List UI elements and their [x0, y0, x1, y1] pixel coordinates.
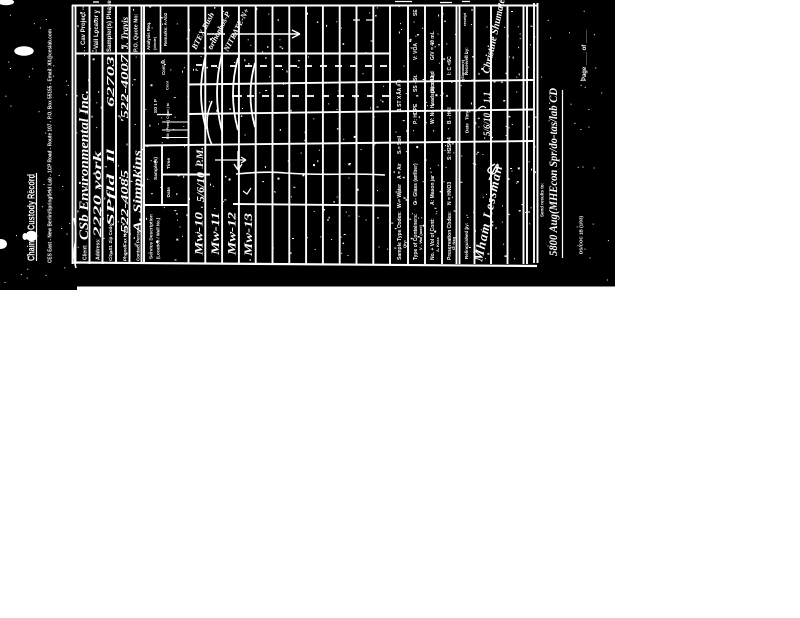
svg-text:Filt | Pres | Cyan | tc: Filt | Pres | Cyan | tc: [166, 103, 170, 139]
svg-text:receipt: receipt: [462, 12, 467, 26]
svg-text:62703: 62703: [105, 55, 117, 107]
svg-text:AA # 4: AA # 4: [397, 79, 403, 95]
svg-text:G - Glass (amber): G - Glass (amber): [413, 163, 419, 205]
svg-text:Service Description: Service Description: [149, 214, 155, 259]
svg-text:W = Water: W = Water: [397, 184, 403, 208]
svg-text:Cool: Cool: [165, 81, 170, 90]
svg-text:SS - St.: SS - St.: [413, 74, 419, 92]
svg-text:Il: Il: [105, 147, 117, 165]
svg-text:Relinquished by:: Relinquished by:: [464, 222, 469, 259]
svg-text:SE: SE: [413, 9, 419, 16]
svg-text:CES East - New Berlin/Springfi: CES East - New Berlin/Springfield Lab - …: [48, 29, 54, 263]
svg-text:J. Travis: J. Travis: [120, 16, 130, 50]
svg-text:Remarks: A-Ab2: Remarks: A-Ab2: [163, 12, 168, 46]
svg-text:City, St. Zip Code:: City, St. Zip Code:: [108, 222, 113, 261]
svg-text:P.M.: P.M.: [195, 147, 205, 167]
svg-text:I: C <6C: I: C <6C: [447, 56, 453, 75]
svg-text:A. Simpkins: A. Simpkins: [130, 150, 144, 234]
svg-text:5800 Aug(MHEcon Spr/do-tas/lab: 5800 Aug(MHEcon Spr/do-tas/lab CD: [548, 87, 560, 256]
svg-text:S: H2SO4: S: H2SO4: [447, 137, 453, 160]
svg-text:Mw-10: Mw-10: [192, 212, 206, 256]
svg-text:--Vail Locator y: --Vail Locator y: [94, 9, 100, 53]
svg-text:Chain of Custody Record: Chain of Custody Record: [27, 174, 38, 261]
svg-text:V: VOA: V: VOA: [413, 43, 419, 60]
svg-text:A: Mason jar: A: Mason jar: [430, 175, 436, 205]
svg-text:P: HDPE: P: HDPE: [413, 103, 419, 124]
svg-text:Mw-12: Mw-12: [225, 212, 239, 256]
svg-text:A = Air: A = Air: [397, 163, 403, 179]
svg-text:Sample(s): Sample(s): [153, 157, 159, 180]
svg-text:Time: Time: [166, 158, 172, 169]
svg-text:5/6/10: 5/6/10: [196, 172, 207, 202]
svg-text:Time: Time: [465, 109, 470, 120]
svg-text:SO 1 P: SO 1 P: [153, 99, 158, 113]
svg-text:5/6/10: 5/6/10: [482, 112, 492, 136]
svg-text:Sample Type Codes:: Sample Type Codes:: [397, 211, 403, 260]
svg-text:S = Soil: S = Soil: [397, 135, 403, 154]
svg-text:. . . Cav Project --: . . . Cav Project --: [81, 6, 87, 55]
svg-text:Date: Date: [465, 123, 470, 133]
svg-text:1.1: 1.1: [482, 92, 492, 103]
svg-text:Preservation Codes:: Preservation Codes:: [447, 211, 453, 260]
svg-text:Send results to:: Send results to:: [540, 182, 545, 217]
svg-text:1 ST X: 1 ST X: [397, 95, 403, 111]
svg-text:N = HNO3: N = HNO3: [447, 182, 453, 205]
svg-text:P.O. Quote No:: P.O. Quote No:: [134, 13, 140, 52]
svg-text:(Signature): (Signature): [461, 59, 465, 80]
svg-text:Analysis Req.: Analysis Req.: [146, 22, 151, 50]
svg-text:A. Kxxx: A. Kxxx: [435, 237, 440, 252]
svg-text:'522-4007: '522-4007: [120, 53, 131, 123]
svg-text:Mw-11: Mw-11: [208, 212, 222, 256]
svg-text:SPfld: SPfld: [105, 173, 117, 226]
svg-text:2220 york: 2220 york: [90, 151, 104, 239]
svg-text:Client:: Client:: [83, 244, 89, 260]
svg-text:G/V = 40 mL: G/V = 40 mL: [430, 31, 436, 60]
svg-text:DS/COC 1B (1/03): DS/COC 1B (1/03): [579, 215, 584, 254]
svg-text:Mw-13: Mw-13: [241, 213, 255, 257]
svg-text:(Location / Well No.): (Location / Well No.): [156, 217, 161, 259]
svg-text:Address:: Address:: [96, 238, 102, 260]
svg-text:B - HCl: B - HCl: [447, 107, 453, 124]
svg-text:(circle): (circle): [152, 36, 157, 50]
svg-text:Page ____ of ____: Page ____ of ____: [582, 29, 588, 81]
svg-text:CSb Environmental Inc.: CSb Environmental Inc.: [76, 90, 91, 240]
svg-text:Date: Date: [166, 187, 172, 198]
svg-text:(1) x 40: (1) x 40: [430, 76, 436, 93]
svg-text:Qty:: Qty:: [402, 240, 407, 248]
